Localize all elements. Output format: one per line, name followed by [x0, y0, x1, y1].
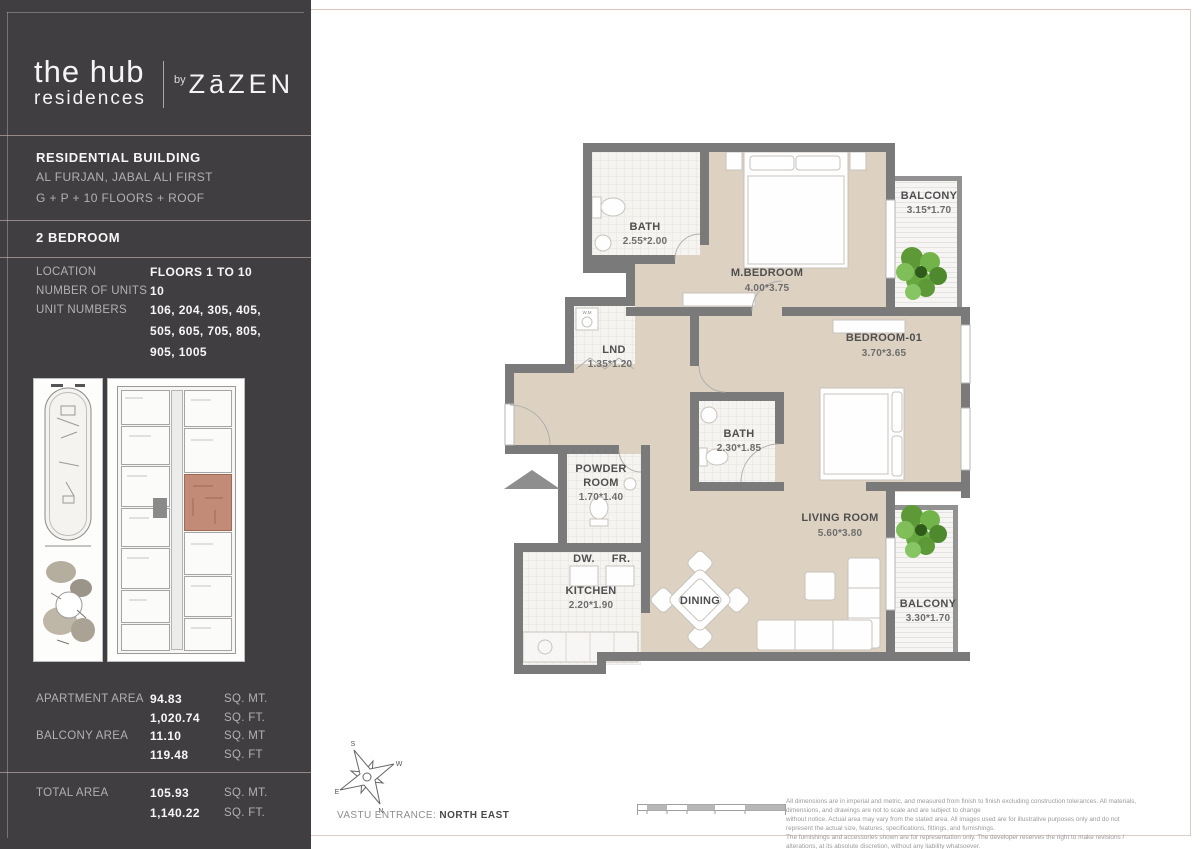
- balcony-area-sqft-unit: SQ. FT: [224, 749, 263, 761]
- building-structure: G + P + 10 FLOORS + ROOF: [36, 191, 204, 205]
- sidebar-divider-1: [0, 135, 311, 136]
- frame-top-line: [311, 9, 1191, 10]
- total-area-sqft: 1,140.22: [150, 806, 200, 820]
- dishwasher: [570, 566, 598, 586]
- mbedroom-balcony-door: [886, 200, 895, 278]
- apartment-area-sqmt-unit: SQ. MT.: [224, 693, 268, 705]
- location-label: LOCATION: [36, 266, 96, 278]
- vastu-entrance: VASTU ENTRANCE: NORTH EAST: [337, 810, 509, 821]
- key-plan-core: [153, 498, 167, 518]
- location-value: FLOORS 1 TO 10: [150, 265, 252, 279]
- brand-developer: ZāZEN: [189, 69, 295, 99]
- building-title: RESIDENTIAL BUILDING: [36, 150, 201, 165]
- compass-w: W: [396, 761, 403, 768]
- bath1-label: BATH: [630, 221, 661, 233]
- powder-room-dims: 1.70*1.40: [579, 492, 624, 503]
- units-label: NUMBER OF UNITS: [36, 285, 147, 297]
- master-bed: [726, 152, 866, 268]
- total-area-label: TOTAL AREA: [36, 787, 108, 799]
- scale-bar: [637, 804, 789, 818]
- washing-machine-label: W.M: [583, 310, 592, 315]
- entrance-arrow-icon: [504, 470, 560, 489]
- balcony-area-label: BALCONY AREA: [36, 730, 128, 742]
- bath2-dims: 2.30*1.85: [717, 443, 762, 454]
- unit-numbers-line2: 505, 605, 705, 805,: [150, 324, 261, 338]
- balcony-bottom-dims: 3.30*1.70: [906, 613, 951, 624]
- bedroom01-window-2: [961, 408, 970, 470]
- bedroom01-dims: 3.70*3.65: [862, 348, 907, 359]
- sidebar-divider-4: [0, 772, 311, 773]
- unit-numbers-label: UNIT NUMBERS: [36, 304, 127, 316]
- disclaimer-line-1: All dimensions are in imperial and metri…: [786, 797, 1144, 815]
- unit-type: 2 BEDROOM: [36, 230, 120, 245]
- brand-developer-logo: byZāZEN: [174, 69, 294, 100]
- bedroom01-window-1: [961, 325, 970, 383]
- powder-sink: [624, 478, 636, 490]
- kitchen-dims: 2.20*1.90: [569, 600, 614, 611]
- living-room-label: LIVING ROOM: [801, 512, 878, 524]
- master-bedroom-dresser: [683, 293, 755, 306]
- balcony-area-sqmt-unit: SQ. MT: [224, 730, 265, 742]
- site-plan-thumbnail: [34, 379, 103, 662]
- living-room-dims: 5.60*3.80: [818, 528, 863, 539]
- sidebar-divider-3: [0, 257, 311, 258]
- balcony-top-dims: 3.15*1.70: [907, 205, 952, 216]
- laundry-label: LND: [602, 344, 626, 356]
- powder-room-label-2: ROOM: [583, 477, 618, 489]
- balcony-area-sqmt: 11.10: [150, 729, 181, 743]
- units-value: 10: [150, 284, 164, 298]
- unit-numbers-line1: 106, 204, 305, 405,: [150, 303, 261, 317]
- compass-s: S: [351, 741, 356, 748]
- disclaimer: All dimensions are in imperial and metri…: [786, 797, 1144, 849]
- dining-label: DINING: [680, 595, 720, 607]
- laundry-dims: 1.35*1.20: [588, 359, 633, 370]
- sidebar: the hub residences byZāZEN RESIDENTIAL B…: [0, 0, 311, 849]
- powder-room-label-1: POWDER: [575, 463, 626, 475]
- living-armchair: [805, 572, 835, 600]
- total-area-sqft-unit: SQ. FT.: [224, 807, 265, 819]
- logo-divider: [163, 61, 164, 108]
- key-plan-thumbnail: [108, 379, 245, 662]
- key-plan-highlighted-unit: [185, 475, 232, 531]
- fridge-label: FR.: [612, 553, 631, 565]
- unit-numbers-line3: 905, 1005: [150, 345, 207, 359]
- apartment-area-label: APARTMENT AREA: [36, 693, 144, 705]
- brochure-page: the hub residences byZāZEN RESIDENTIAL B…: [0, 0, 1200, 849]
- dishwasher-label: DW.: [573, 553, 595, 565]
- bath1-toilet: [592, 197, 625, 218]
- brand-logo-line1: the hub: [34, 57, 144, 87]
- plan-thumbnails: [33, 378, 245, 662]
- mbedroom-label: M.BEDROOM: [731, 267, 803, 279]
- vastu-label: VASTU ENTRANCE:: [337, 810, 436, 821]
- fridge: [606, 566, 634, 586]
- kitchen-label: KITCHEN: [566, 585, 617, 597]
- bedroom01-label: BEDROOM-01: [846, 332, 922, 344]
- sidebar-inner-border-top: [7, 12, 304, 13]
- sidebar-divider-2: [0, 220, 311, 221]
- apartment-area-sqft: 1,020.74: [150, 711, 200, 725]
- compass-e: E: [335, 789, 340, 796]
- disclaimer-line-2: without notice. Actual area may vary fro…: [786, 815, 1144, 833]
- bath1-dims: 2.55*2.00: [623, 236, 668, 247]
- frame-right-line: [1190, 9, 1191, 836]
- building-address: AL FURJAN, JABAL ALI FIRST: [36, 170, 213, 184]
- living-balcony-door: [886, 538, 895, 610]
- balcony-bottom-label: BALCONY: [900, 598, 957, 610]
- floor-plan: BATH 2.55*2.00 M.BEDROOM 4.00*3.75 BALCO…: [500, 135, 980, 685]
- bath1-sink: [595, 235, 611, 251]
- balcony-top-label: BALCONY: [901, 190, 958, 202]
- total-area-sqmt-unit: SQ. MT.: [224, 787, 268, 799]
- mbedroom-dims: 4.00*3.75: [745, 283, 790, 294]
- balcony-area-sqft: 119.48: [150, 748, 188, 762]
- vastu-value: NORTH EAST: [439, 810, 509, 821]
- brand-logo-line2: residences: [34, 89, 146, 109]
- compass-rose-icon: S W E N: [333, 737, 405, 815]
- brand-by: by: [174, 74, 186, 86]
- bedroom01-bed: [820, 388, 904, 480]
- bath2-sink: [701, 407, 717, 423]
- apartment-area-sqmt: 94.83: [150, 692, 182, 706]
- disclaimer-line-3: The furnishings and accessories shown ar…: [786, 833, 1144, 849]
- total-area-sqmt: 105.93: [150, 786, 189, 800]
- entrance-door-gap: [505, 404, 514, 445]
- bath2-label: BATH: [724, 428, 755, 440]
- apartment-area-sqft-unit: SQ. FT.: [224, 712, 265, 724]
